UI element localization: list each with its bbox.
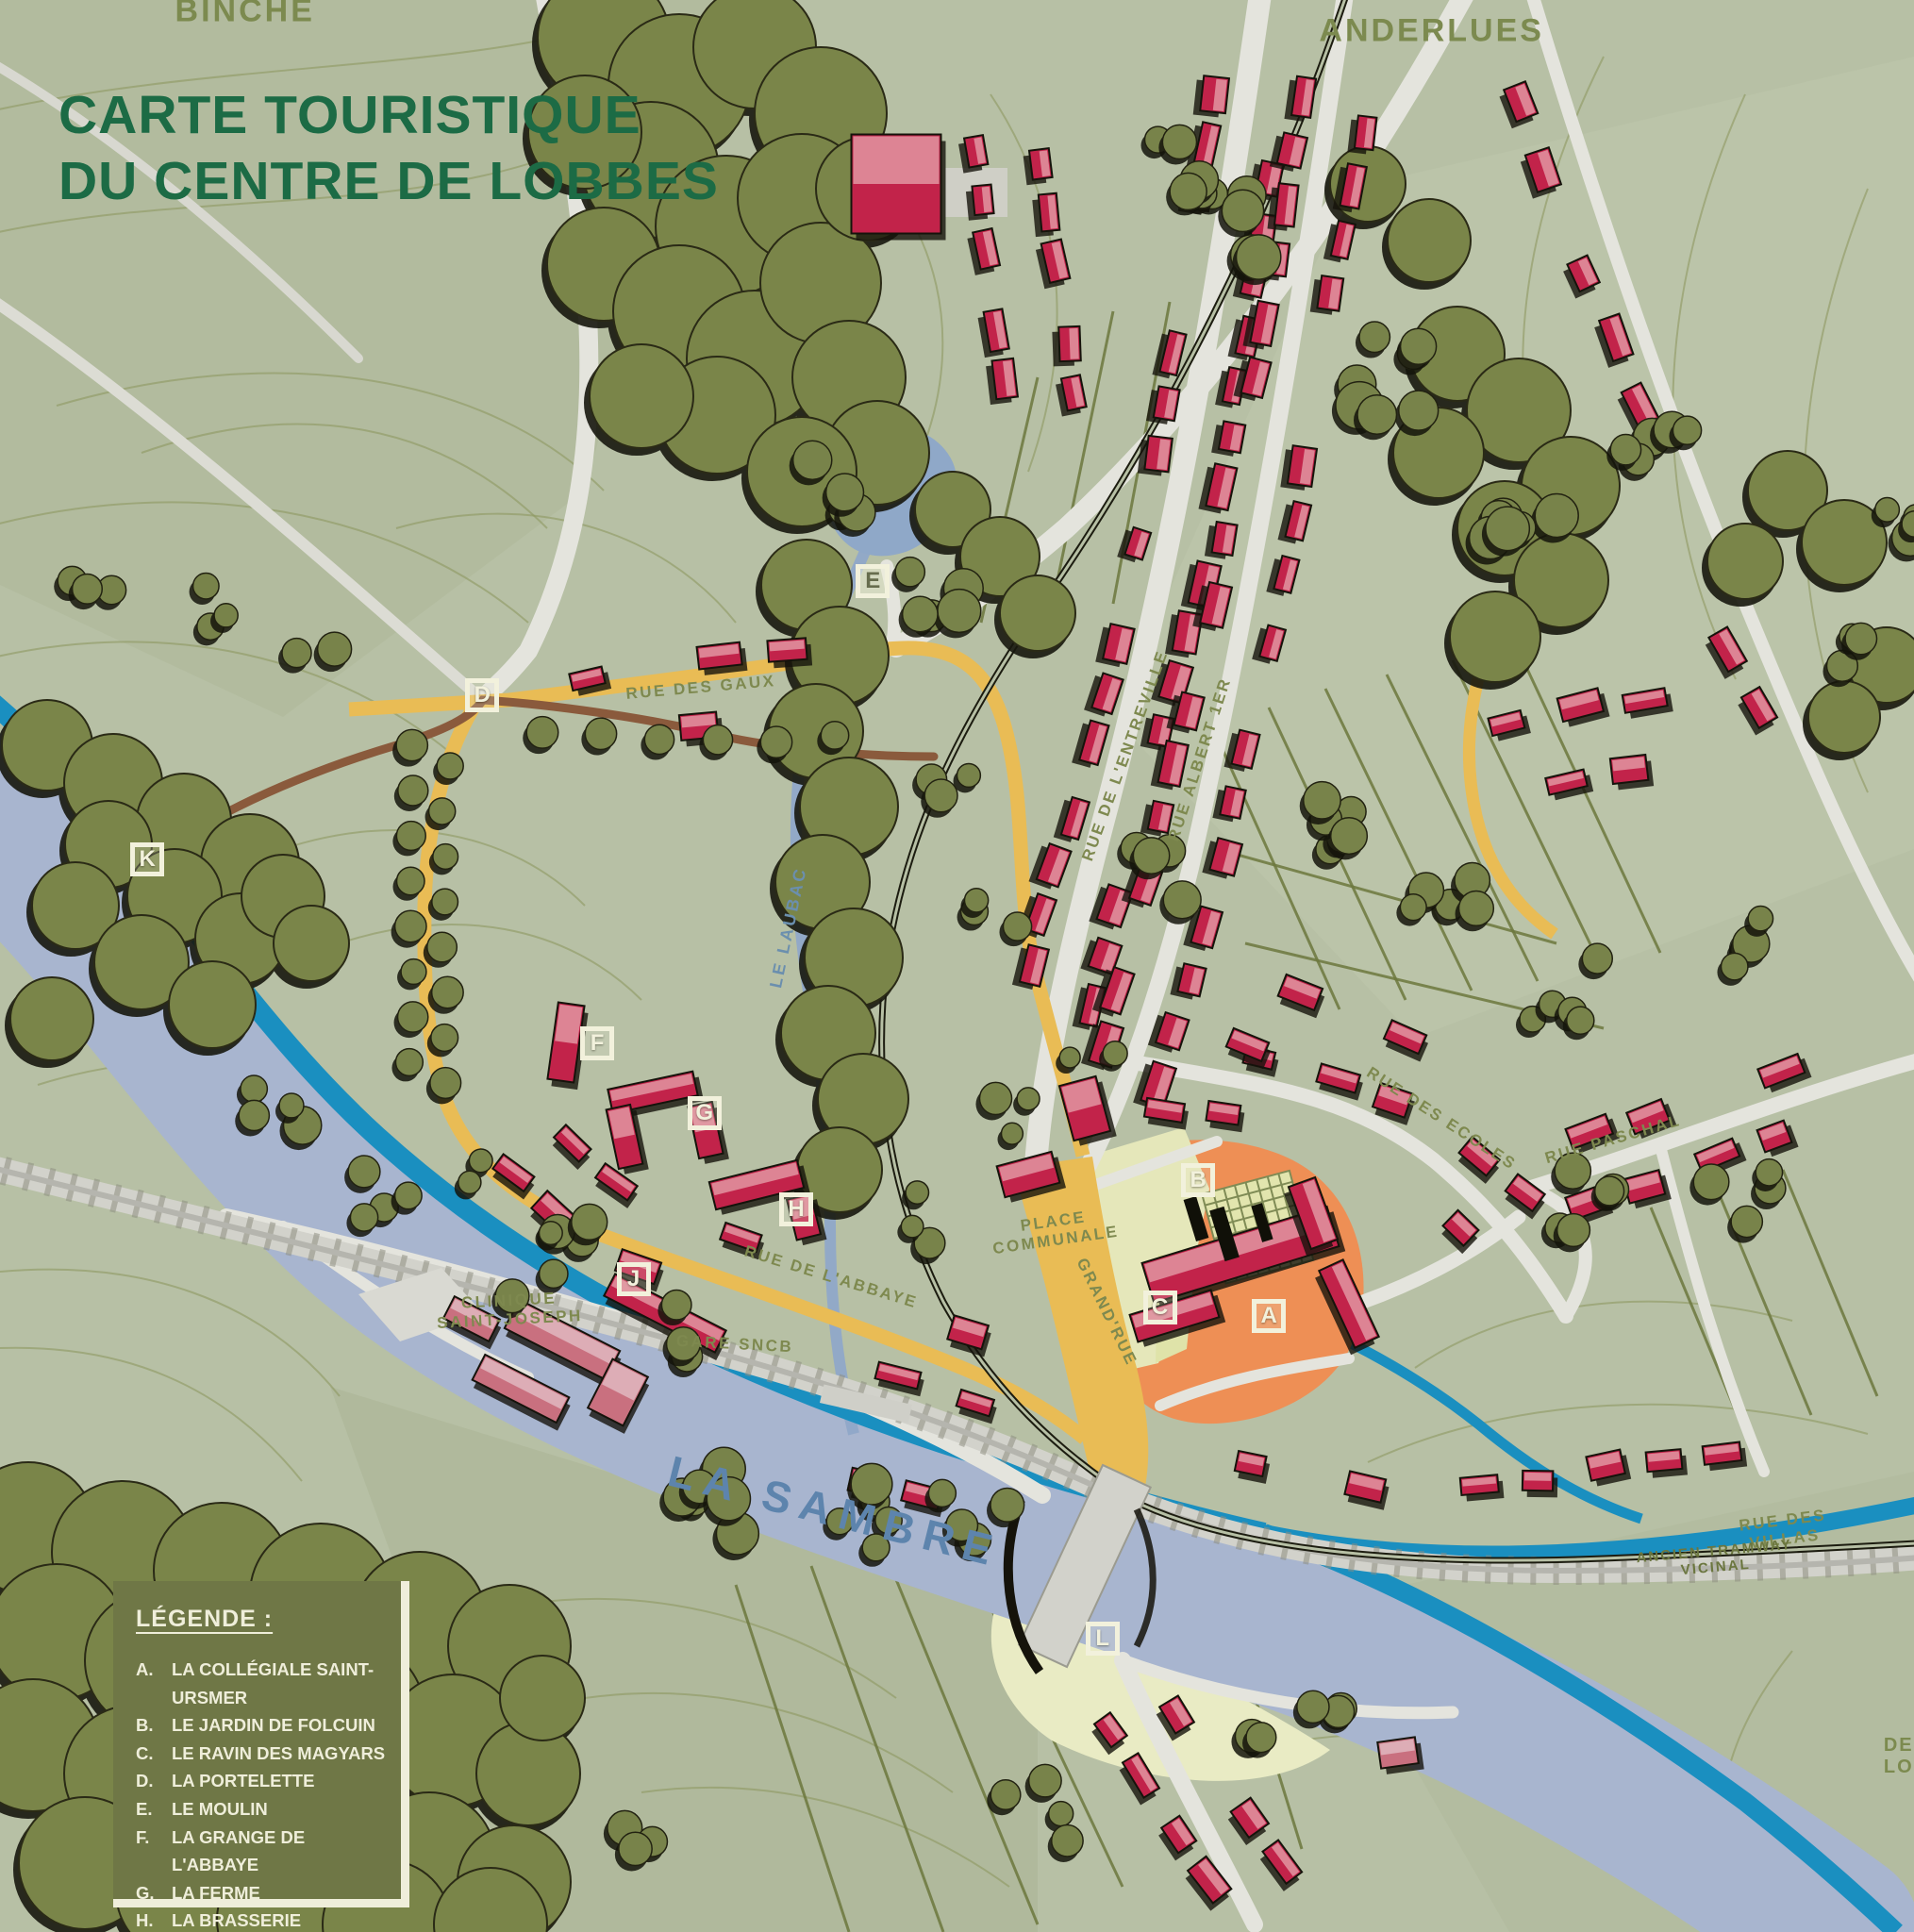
- legend-item-a: A.LA COLLÉGIALE SAINT-URSMER: [136, 1656, 388, 1711]
- legend-item-key: A.: [136, 1656, 172, 1711]
- legend-items: A.LA COLLÉGIALE SAINT-URSMERB.LE JARDIN …: [136, 1656, 388, 1932]
- map-legend: LÉGENDE : A.LA COLLÉGIALE SAINT-URSMERB.…: [113, 1581, 409, 1907]
- marker-g[interactable]: G: [688, 1096, 722, 1130]
- legend-item-g: G.LA FERME: [136, 1879, 388, 1907]
- legend-item-b: B.LE JARDIN DE FOLCUIN: [136, 1711, 388, 1740]
- marker-a[interactable]: A: [1252, 1299, 1286, 1333]
- marker-d[interactable]: D: [465, 678, 499, 712]
- legend-item-d: D.LA PORTELETTE: [136, 1767, 388, 1795]
- legend-item-key: G.: [136, 1879, 172, 1907]
- legend-item-label: LA COLLÉGIALE SAINT-URSMER: [172, 1656, 388, 1711]
- legend-item-key: H.: [136, 1907, 172, 1932]
- marker-l[interactable]: L: [1086, 1622, 1120, 1656]
- map-title: CARTE TOURISTIQUE DU CENTRE DE LOBBES: [58, 83, 719, 214]
- map-title-line2: DU CENTRE DE LOBBES: [58, 149, 719, 215]
- legend-item-label: LE RAVIN DES MAGYARS: [172, 1740, 385, 1768]
- marker-c[interactable]: C: [1143, 1291, 1177, 1324]
- marker-b[interactable]: B: [1181, 1163, 1215, 1197]
- legend-item-key: E.: [136, 1795, 172, 1824]
- marker-f[interactable]: F: [580, 1026, 614, 1060]
- legend-item-f: F.LA GRANGE DE L'ABBAYE: [136, 1824, 388, 1879]
- label-anderlues: ANDERLUES: [1319, 12, 1544, 49]
- legend-title: LÉGENDE :: [136, 1606, 388, 1633]
- legend-item-key: D.: [136, 1767, 172, 1795]
- legend-item-label: LE JARDIN DE FOLCUIN: [172, 1711, 375, 1740]
- legend-item-key: C.: [136, 1740, 172, 1768]
- legend-item-label: LE MOULIN: [172, 1795, 268, 1824]
- legend-item-label: LA BRASSERIE: [172, 1907, 301, 1932]
- marker-e[interactable]: E: [856, 564, 890, 598]
- label-clinique-saint-joseph: CLINIQUE SAINT-JOSEPH: [435, 1288, 583, 1333]
- marker-j[interactable]: J: [617, 1262, 651, 1296]
- label-binche: BINCHE: [175, 0, 315, 30]
- marker-h[interactable]: H: [779, 1192, 813, 1226]
- legend-item-label: LA GRANGE DE L'ABBAYE: [172, 1824, 388, 1879]
- map-title-line1: CARTE TOURISTIQUE: [58, 83, 719, 149]
- legend-item-label: LA FERME: [172, 1879, 260, 1907]
- legend-item-e: E.LE MOULIN: [136, 1795, 388, 1824]
- label-de-lo: DE LO: [1884, 1735, 1914, 1778]
- legend-item-h: H.LA BRASSERIE: [136, 1907, 388, 1932]
- legend-item-key: B.: [136, 1711, 172, 1740]
- marker-k[interactable]: K: [130, 842, 164, 876]
- legend-item-c: C.LE RAVIN DES MAGYARS: [136, 1740, 388, 1768]
- legend-item-label: LA PORTELETTE: [172, 1767, 314, 1795]
- legend-item-key: F.: [136, 1824, 172, 1879]
- tourist-map-of-lobbes[interactable]: BINCHEANDERLUESRUE DES GAUXRUE DE L'ENTR…: [0, 0, 1914, 1932]
